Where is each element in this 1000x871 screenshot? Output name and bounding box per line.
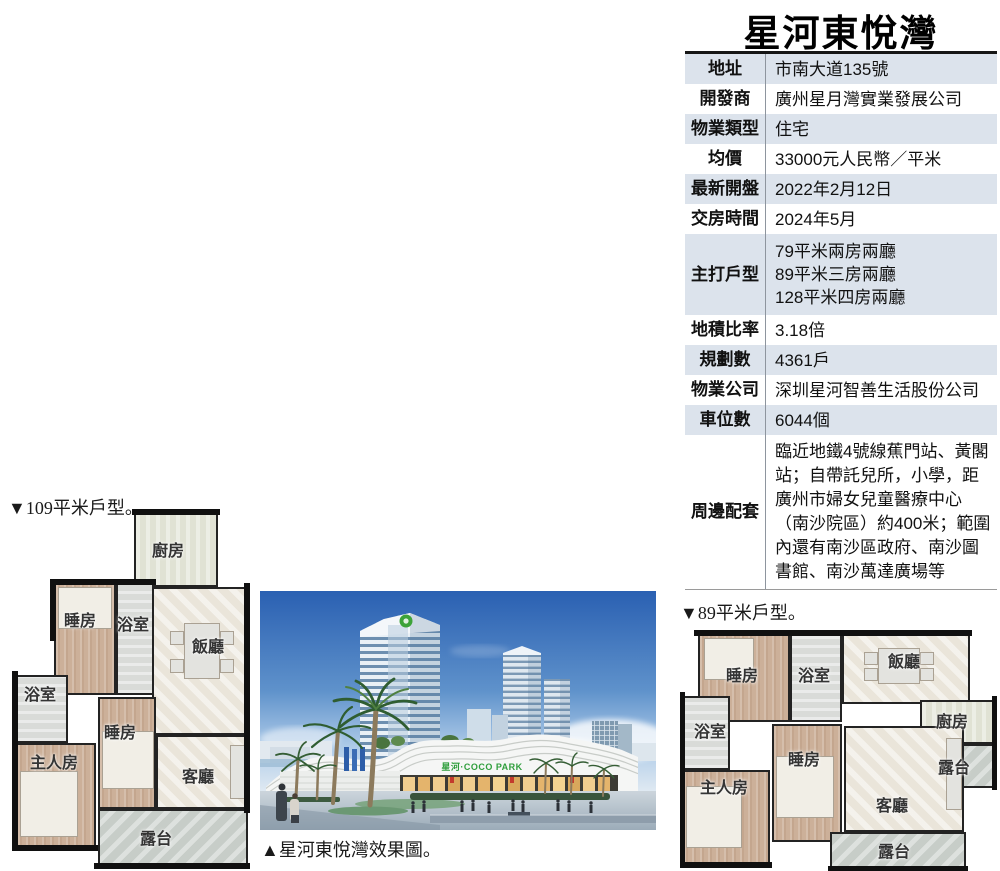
floorplan-89-caption: ▼89平米戶型。 <box>680 599 806 625</box>
wall <box>680 692 685 868</box>
row-label: 周邊配套 <box>685 435 766 589</box>
row-label: 開發商 <box>685 84 766 114</box>
room-terrace <box>98 809 248 867</box>
floorplan-109: 廚房 飯廳 睡房 浴室 浴室 主人房 睡房 客廳 露台 <box>2 505 250 871</box>
wall <box>244 583 250 813</box>
table-row-surroundings: 周邊配套 臨近地鐵4號線蕉門站、黃閣站；自帶託兒所，小學，距廣州市婦女兒童醫療中… <box>685 435 997 589</box>
row-value: 4361戶 <box>766 345 997 375</box>
row-label: 主打戶型 <box>685 234 766 315</box>
room-label-living: 客廳 <box>876 792 908 816</box>
row-label: 地積比率 <box>685 315 766 345</box>
wall <box>12 743 18 849</box>
table-row-planned-units: 規劃數 4361戶 <box>685 345 997 375</box>
room-label-bedroom2: 睡房 <box>788 746 820 770</box>
row-label: 物業類型 <box>685 114 766 144</box>
table-row-latest-launch: 最新開盤 2022年2月12日 <box>685 174 997 204</box>
row-value: 深圳星河智善生活股份公司 <box>766 375 997 405</box>
wall <box>12 671 18 745</box>
row-value: 3.18倍 <box>766 315 997 345</box>
wall <box>694 630 846 636</box>
room-label-terrace-bottom: 露台 <box>878 838 910 862</box>
room-label-bedroom2: 睡房 <box>104 719 136 743</box>
room-label-bedroom1: 睡房 <box>64 607 96 631</box>
room-label-kitchen: 廚房 <box>936 708 968 732</box>
banner <box>344 747 349 775</box>
row-value: 2024年5月 <box>766 204 997 234</box>
wall <box>992 696 997 790</box>
bed-furniture <box>20 771 78 837</box>
building-render-photo: 星河·COCO PARK <box>260 591 656 830</box>
wall <box>12 845 98 851</box>
room-label-bath2: 浴室 <box>24 681 56 705</box>
wall <box>50 579 56 641</box>
room-label-kitchen: 廚房 <box>152 537 184 561</box>
row-value: 住宅 <box>766 114 997 144</box>
row-value: 79平米兩房兩廳 89平米三房兩廳 128平米四房兩廳 <box>766 234 997 315</box>
row-value: 臨近地鐵4號線蕉門站、黃閣站；自帶託兒所，小學，距廣州市婦女兒童醫療中心（南沙院… <box>766 435 997 589</box>
chair <box>170 631 184 645</box>
room-label-bath1: 浴室 <box>117 611 149 635</box>
wall <box>132 509 220 515</box>
wall <box>828 866 968 871</box>
row-label: 物業公司 <box>685 375 766 405</box>
wall <box>94 863 250 869</box>
row-label: 均價 <box>685 144 766 174</box>
table-row-management-company: 物業公司 深圳星河智善生活股份公司 <box>685 375 997 405</box>
row-value: 33000元人民幣／平米 <box>766 144 997 174</box>
room-bath1 <box>116 583 154 695</box>
table-row-average-price: 均價 33000元人民幣／平米 <box>685 144 997 174</box>
row-label: 規劃數 <box>685 345 766 375</box>
chair <box>864 652 878 665</box>
room-label-dining: 飯廳 <box>888 648 920 672</box>
wall <box>680 862 772 868</box>
chair <box>864 668 878 681</box>
floorplan-89: 睡房 浴室 飯廳 廚房 露台 浴室 主人房 睡房 客廳 露台 <box>680 626 998 871</box>
page-root: 星河東悅灣 地址 市南大道135號 開發商 廣州星月灣實業發展公司 物業類型 住… <box>0 0 1000 871</box>
table-row-handover-date: 交房時間 2024年5月 <box>685 204 997 234</box>
chair <box>220 659 234 673</box>
room-label-bath2: 浴室 <box>694 718 726 742</box>
chair <box>170 659 184 673</box>
room-label-bedroom1: 睡房 <box>726 662 758 686</box>
room-label-living: 客廳 <box>182 763 214 787</box>
row-label: 車位數 <box>685 405 766 435</box>
room-label-master: 主人房 <box>30 749 78 773</box>
property-info-table: 地址 市南大道135號 開發商 廣州星月灣實業發展公司 物業類型 住宅 均價 3… <box>685 51 997 590</box>
room-label-dining: 飯廳 <box>192 633 224 657</box>
banner <box>360 747 365 775</box>
row-label: 地址 <box>685 54 766 84</box>
row-value: 2022年2月12日 <box>766 174 997 204</box>
row-value: 市南大道135號 <box>766 54 997 84</box>
render-caption: ▲星河東悅灣效果圖。 <box>261 836 441 862</box>
table-row-plot-ratio: 地積比率 3.18倍 <box>685 315 997 345</box>
table-row-parking-spaces: 車位數 6044個 <box>685 405 997 435</box>
table-row-property-type: 物業類型 住宅 <box>685 114 997 144</box>
table-row-developer: 開發商 廣州星月灣實業發展公司 <box>685 84 997 114</box>
chair <box>920 668 934 681</box>
room-label-master: 主人房 <box>700 774 748 798</box>
chair <box>920 652 934 665</box>
wall <box>52 579 156 585</box>
row-value: 廣州星月灣實業發展公司 <box>766 84 997 114</box>
plaza-ground <box>260 791 656 830</box>
row-label: 最新開盤 <box>685 174 766 204</box>
building-render-image: 星河·COCO PARK <box>260 591 656 830</box>
table-row-main-unit-types: 主打戶型 79平米兩房兩廳 89平米三房兩廳 128平米四房兩廳 <box>685 234 997 315</box>
row-value: 6044個 <box>766 405 997 435</box>
table-row-address: 地址 市南大道135號 <box>685 54 997 84</box>
room-label-terrace-right: 露台 <box>938 754 970 778</box>
row-label: 交房時間 <box>685 204 766 234</box>
wall <box>846 630 972 636</box>
mall-sign-text: 星河·COCO PARK <box>441 761 522 772</box>
room-label-bath1: 浴室 <box>798 662 830 686</box>
room-label-terrace: 露台 <box>140 825 172 849</box>
page-title: 星河東悅灣 <box>685 3 997 57</box>
